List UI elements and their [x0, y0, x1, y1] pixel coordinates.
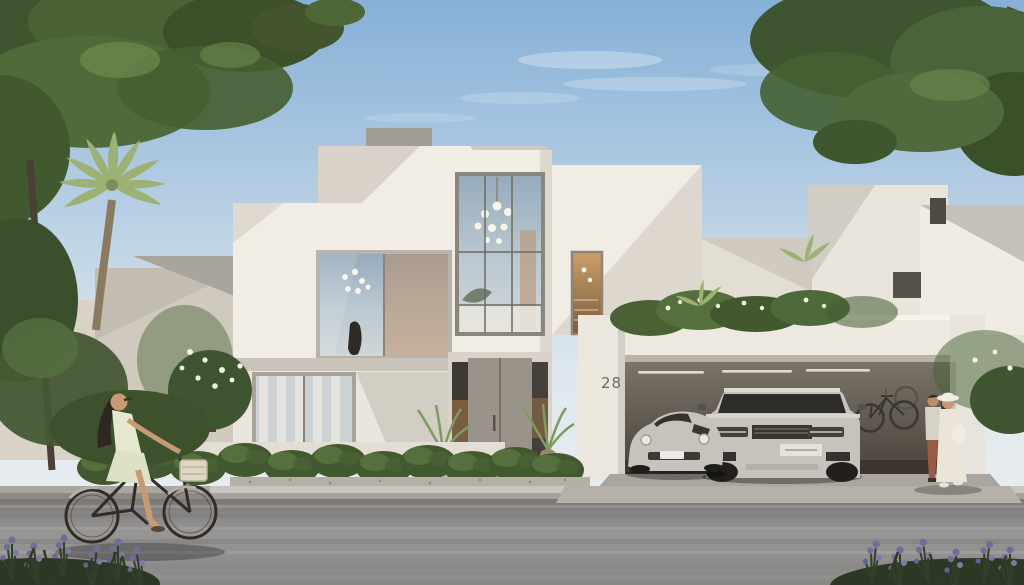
porsche-license-plate	[660, 451, 684, 459]
head	[111, 394, 128, 411]
carport-pillar-left	[578, 315, 625, 480]
porsche-headlight	[641, 435, 651, 445]
basket	[180, 460, 207, 481]
suv-grille	[752, 425, 812, 439]
interior-vase	[348, 321, 362, 355]
sun-hat	[937, 395, 959, 402]
suv-windshield	[718, 394, 846, 413]
sandal	[151, 526, 165, 532]
neighbor-window	[930, 198, 946, 224]
gravel-strip	[230, 477, 590, 487]
neighbor-window	[893, 272, 921, 298]
suv-wheel	[826, 462, 858, 482]
scene-canvas: 28	[0, 0, 1024, 585]
villa-left-box	[233, 203, 455, 365]
house-number: 28	[601, 374, 622, 392]
rendered-scene: 28	[0, 0, 1024, 585]
porsche-headlight	[699, 434, 709, 444]
handbag	[952, 425, 966, 443]
door-handle	[493, 415, 496, 431]
